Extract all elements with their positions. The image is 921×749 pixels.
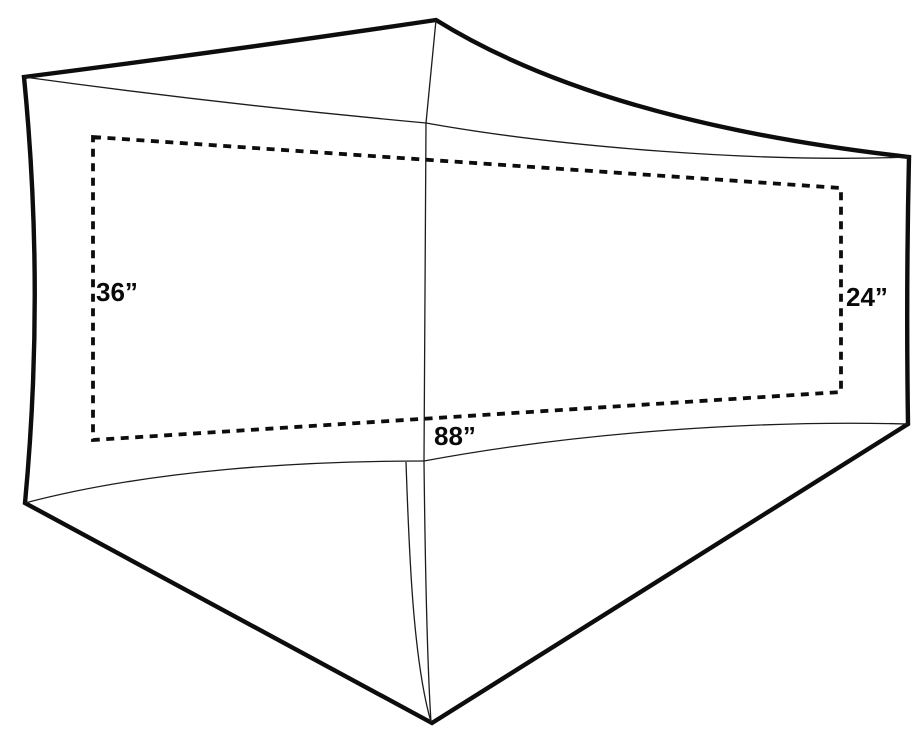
inner-floor-dashed-outline xyxy=(93,137,841,440)
seam-top-left xyxy=(24,77,426,123)
seam-top-right xyxy=(426,123,909,158)
diagram-drawing: 36” 24” 88” xyxy=(0,0,921,749)
center-panel-seam-right xyxy=(424,461,431,722)
seam-bottom-left xyxy=(25,461,424,503)
tent-outline xyxy=(24,20,909,723)
seam-bottom-right xyxy=(424,423,908,461)
center-panel-seam-left xyxy=(406,462,431,722)
tent-dimensions-diagram: 36” 24” 88” xyxy=(0,0,921,749)
dimension-label-length: 88” xyxy=(434,421,476,451)
ridge-seam-line xyxy=(424,20,436,461)
dimension-label-left-width: 36” xyxy=(96,277,138,307)
dimension-label-right-width: 24” xyxy=(846,282,888,312)
